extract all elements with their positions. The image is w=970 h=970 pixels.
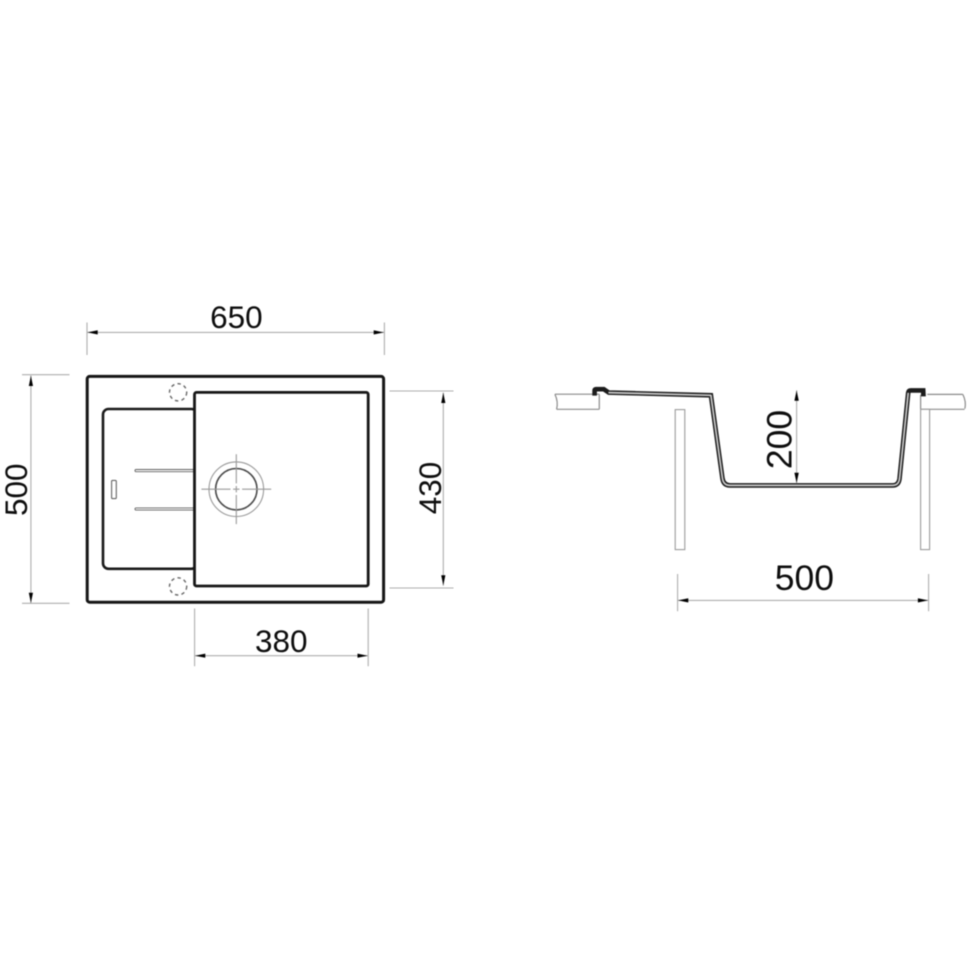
svg-text:380: 380 bbox=[255, 623, 308, 659]
svg-text:200: 200 bbox=[760, 410, 800, 469]
svg-text:500: 500 bbox=[0, 463, 34, 516]
svg-text:650: 650 bbox=[210, 299, 263, 335]
svg-text:500: 500 bbox=[775, 558, 834, 598]
svg-text:430: 430 bbox=[412, 462, 448, 515]
